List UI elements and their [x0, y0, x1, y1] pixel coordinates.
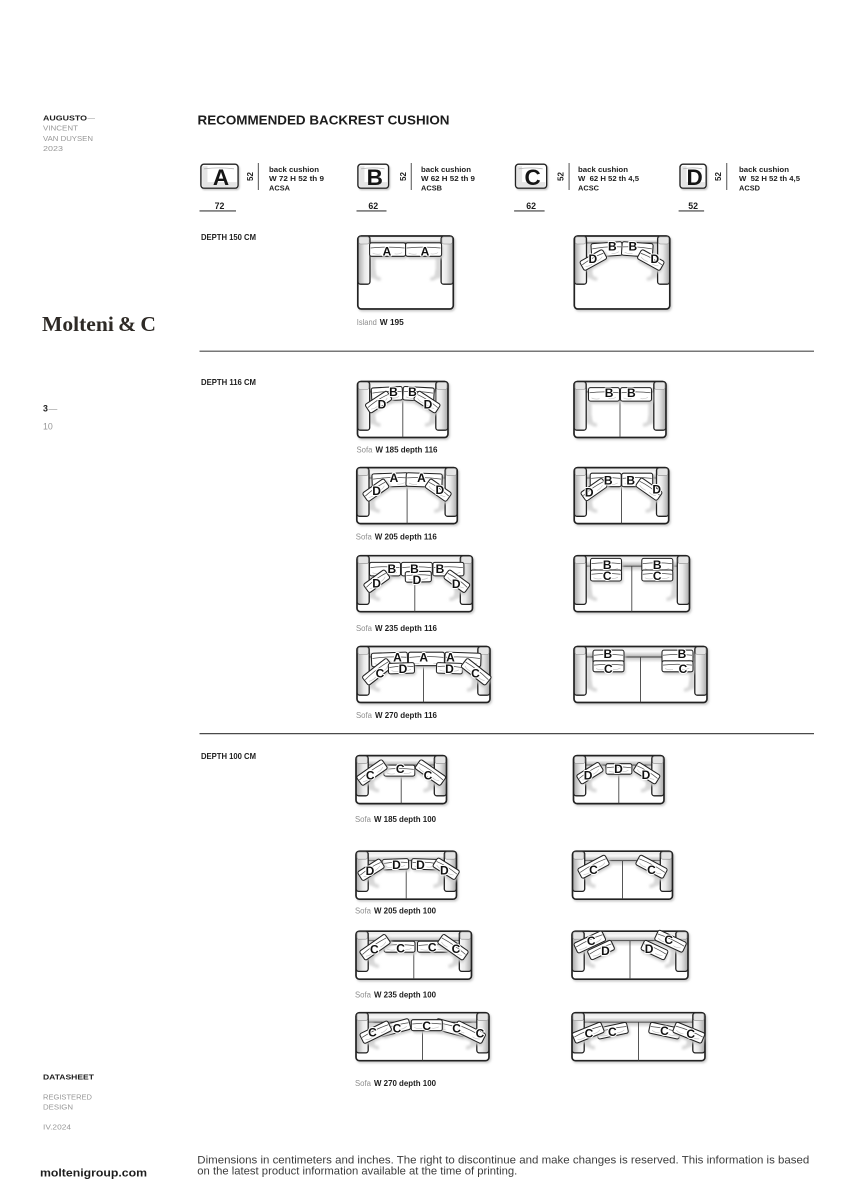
svg-text:D: D [588, 252, 597, 266]
svg-text:C: C [376, 666, 385, 680]
svg-text:D: D [416, 858, 425, 872]
svg-text:DEPTH 150 CM: DEPTH 150 CM [201, 233, 256, 242]
svg-text:C: C [370, 942, 379, 956]
svg-text:10: 10 [43, 422, 53, 432]
svg-text:B: B [608, 239, 617, 253]
svg-text:C: C [452, 1021, 461, 1035]
svg-text:ACSA: ACSA [269, 183, 291, 192]
svg-text:D: D [601, 944, 610, 958]
svg-text:SofaW 270 depth 116: SofaW 270 depth 116 [356, 711, 438, 720]
svg-text:B: B [627, 386, 636, 400]
svg-text:C: C [393, 1021, 402, 1035]
svg-text:72: 72 [215, 201, 225, 211]
svg-text:52: 52 [557, 172, 566, 181]
svg-text:C: C [424, 768, 433, 782]
svg-text:C: C [368, 1026, 377, 1040]
svg-text:D: D [642, 768, 651, 782]
svg-text:A: A [417, 471, 426, 485]
svg-text:VINCENT: VINCENT [43, 124, 78, 133]
svg-text:IslandW 195: IslandW 195 [357, 318, 405, 327]
svg-text:D: D [440, 864, 449, 878]
svg-text:DATASHEET: DATASHEET [43, 1072, 94, 1081]
svg-text:SofaW 235 depth 100: SofaW 235 depth 100 [355, 991, 437, 1000]
svg-text:D: D [372, 577, 381, 591]
svg-text:AUGUSTO: AUGUSTO [43, 114, 87, 123]
svg-text:D: D [366, 864, 375, 878]
svg-text:SofaW 270 depth 100: SofaW 270 depth 100 [355, 1079, 437, 1088]
svg-text:D: D [392, 858, 401, 872]
svg-text:C: C [428, 941, 437, 955]
svg-text:B: B [436, 562, 445, 576]
svg-text:C: C [679, 662, 688, 676]
svg-text:ACSD: ACSD [739, 183, 760, 192]
svg-text:Dimensions in centimeters and: Dimensions in centimeters and inches. Th… [197, 1155, 809, 1167]
svg-text:C: C [587, 934, 596, 948]
svg-text:SofaW 235 depth 116: SofaW 235 depth 116 [356, 624, 438, 633]
svg-text:back cushion: back cushion [739, 165, 789, 174]
svg-text:—: — [88, 114, 96, 123]
svg-text:REGISTERED: REGISTERED [43, 1092, 93, 1101]
svg-text:62: 62 [526, 201, 536, 211]
svg-text:W 62 H 52 th 9: W 62 H 52 th 9 [421, 174, 475, 183]
svg-text:C: C [585, 1026, 594, 1040]
svg-text:B: B [678, 647, 687, 661]
svg-text:SofaW 205 depth 100: SofaW 205 depth 100 [355, 907, 437, 916]
svg-text:B: B [626, 474, 635, 488]
svg-text:52: 52 [688, 201, 698, 211]
svg-text:RECOMMENDED BACKREST CUSHION: RECOMMENDED BACKREST CUSHION [198, 114, 450, 128]
svg-text:A: A [421, 245, 430, 259]
svg-text:Molteni & C: Molteni & C [42, 312, 156, 336]
svg-text:back cushion: back cushion [421, 165, 471, 174]
svg-text:52: 52 [714, 172, 723, 181]
svg-text:D: D [445, 662, 454, 676]
svg-text:on the latest product informat: on the latest product information availa… [197, 1166, 517, 1178]
svg-text:D: D [652, 483, 661, 497]
svg-text:SofaW 205 depth 116: SofaW 205 depth 116 [356, 532, 438, 541]
svg-text:52: 52 [246, 172, 255, 181]
svg-text:B: B [628, 239, 637, 253]
svg-text:D: D [585, 486, 594, 500]
svg-text:A: A [383, 245, 392, 259]
svg-text:W 62 H 52 th 4,5: W 62 H 52 th 4,5 [578, 174, 639, 183]
svg-text:W 52 H 52 th 4,5: W 52 H 52 th 4,5 [739, 174, 800, 183]
svg-text:B: B [367, 165, 383, 190]
svg-text:B: B [605, 386, 614, 400]
svg-text:B: B [603, 647, 612, 661]
svg-text:ACSB: ACSB [421, 183, 442, 192]
svg-text:C: C [647, 863, 656, 877]
svg-text:VAN DUYSEN: VAN DUYSEN [43, 134, 93, 143]
svg-text:C: C [452, 942, 461, 956]
svg-text:D: D [399, 662, 408, 676]
svg-text:C: C [471, 666, 480, 680]
svg-text:B: B [389, 385, 398, 399]
svg-text:back cushion: back cushion [269, 165, 319, 174]
svg-text:ACSC: ACSC [578, 183, 600, 192]
svg-text:DEPTH 100 CM: DEPTH 100 CM [201, 752, 256, 761]
svg-text:D: D [435, 483, 444, 497]
svg-text:D: D [614, 762, 623, 776]
svg-text:SofaW 185 depth 116: SofaW 185 depth 116 [357, 446, 439, 455]
svg-text:52: 52 [399, 172, 408, 181]
svg-text:C: C [524, 165, 540, 190]
svg-text:C: C [653, 569, 662, 583]
svg-text:C: C [396, 942, 405, 956]
svg-text:C: C [396, 762, 405, 776]
svg-text:C: C [604, 662, 613, 676]
svg-text:C: C [608, 1025, 617, 1039]
svg-text:A: A [419, 650, 428, 664]
svg-text:D: D [584, 768, 593, 782]
svg-text:C: C [589, 863, 598, 877]
svg-text:D: D [378, 397, 387, 411]
svg-text:—: — [49, 404, 58, 414]
svg-text:D: D [424, 397, 433, 411]
svg-text:moltenigroup.com: moltenigroup.com [40, 1168, 147, 1180]
svg-text:D: D [645, 942, 654, 956]
svg-text:DESIGN: DESIGN [43, 1103, 73, 1112]
svg-text:2023: 2023 [43, 144, 63, 153]
svg-text:A: A [390, 471, 399, 485]
svg-text:back cushion: back cushion [578, 165, 628, 174]
svg-text:C: C [476, 1026, 485, 1040]
svg-text:D: D [452, 577, 461, 591]
svg-text:DEPTH 116 CM: DEPTH 116 CM [201, 378, 256, 387]
svg-text:IV.2024: IV.2024 [43, 1123, 71, 1132]
svg-text:C: C [603, 569, 612, 583]
svg-text:3: 3 [43, 404, 48, 414]
svg-text:62: 62 [368, 201, 378, 211]
svg-text:C: C [664, 933, 673, 947]
svg-text:W 72 H 52 th 9: W 72 H 52 th 9 [269, 174, 324, 183]
svg-text:SofaW 185 depth 100: SofaW 185 depth 100 [355, 815, 437, 824]
svg-text:C: C [366, 768, 375, 782]
svg-text:B: B [408, 385, 417, 399]
svg-text:C: C [686, 1027, 695, 1041]
svg-text:A: A [213, 165, 229, 190]
svg-text:D: D [686, 165, 702, 190]
svg-text:D: D [650, 252, 659, 266]
svg-text:B: B [604, 474, 613, 488]
svg-text:B: B [387, 562, 396, 576]
svg-text:C: C [422, 1019, 431, 1033]
svg-text:C: C [660, 1024, 669, 1038]
svg-text:D: D [413, 573, 422, 587]
svg-text:D: D [372, 484, 381, 498]
